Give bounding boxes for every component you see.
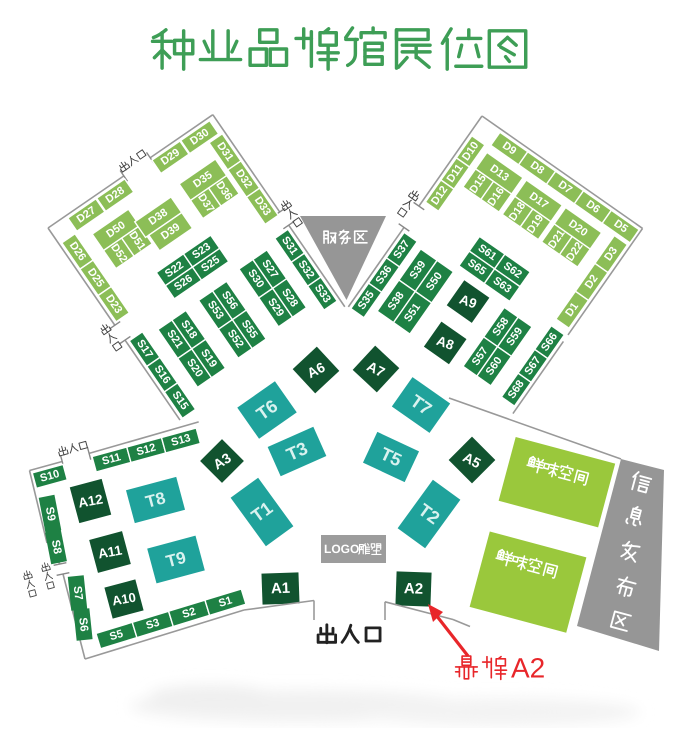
svg-text:S6: S6 (76, 617, 89, 632)
svg-text:A2: A2 (511, 653, 545, 684)
svg-text:LOGO: LOGO (324, 542, 359, 556)
svg-text:S7: S7 (71, 585, 84, 600)
svg-text:A2: A2 (404, 580, 424, 598)
svg-text:A1: A1 (271, 580, 291, 598)
